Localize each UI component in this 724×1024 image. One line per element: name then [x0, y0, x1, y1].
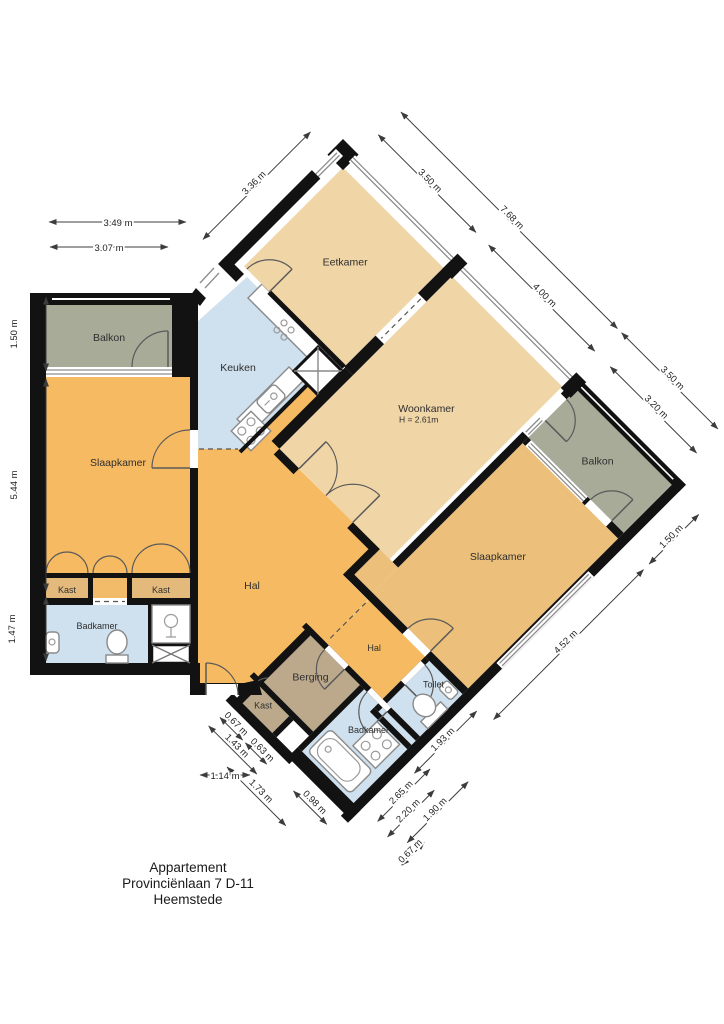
label-slaapkamer-right: Slaapkamer [470, 551, 527, 563]
toilet-left-tank-icon [106, 655, 128, 663]
floorplan-page: 3.50 m 4.00 m 7.68 m 3.20 m 3.50 m 3.36 … [0, 0, 724, 1024]
label-badkamer-left: Badkamer [76, 621, 117, 631]
svg-text:7.68 m: 7.68 m [497, 204, 525, 232]
label-balkon-right: Balkon [582, 455, 614, 467]
label-kast-b: Kast [152, 585, 171, 595]
label-berging: Berging [292, 672, 328, 684]
label-woonkamer-height: H = 2.61m [399, 415, 438, 425]
label-balkon-left: Balkon [93, 332, 125, 344]
label-hal-small: Hal [367, 643, 381, 653]
svg-text:3.49 m: 3.49 m [103, 218, 132, 229]
sink-left-icon [46, 632, 59, 653]
svg-text:5.44 m: 5.44 m [9, 470, 20, 499]
svg-text:4.52 m: 4.52 m [552, 628, 580, 656]
svg-text:3.50 m: 3.50 m [658, 364, 686, 392]
svg-text:0.67 m: 0.67 m [396, 837, 424, 865]
label-kast-a: Kast [58, 585, 77, 595]
svg-text:3.07 m: 3.07 m [94, 243, 123, 254]
label-keuken: Keuken [220, 362, 256, 374]
svg-text:3.50 m: 3.50 m [415, 167, 443, 195]
door-gap-slaapkamer-left [190, 430, 198, 468]
title-line-2: Provinciënlaan 7 D-11 [122, 876, 254, 891]
left-block [30, 293, 198, 675]
window-balkon-slaapkamer [46, 367, 172, 377]
label-toilet: Toilet [423, 680, 445, 690]
svg-text:1.50 m: 1.50 m [657, 523, 685, 551]
room-badkamer-left [46, 605, 148, 663]
svg-text:1.43 m: 1.43 m [222, 732, 250, 760]
title-line-3: Heemstede [153, 892, 222, 907]
label-slaapkamer-left: Slaapkamer [90, 457, 147, 469]
title-line-1: Appartement [149, 860, 227, 875]
label-eetkamer: Eetkamer [323, 257, 368, 269]
plan-title: Appartement Provinciënlaan 7 D-11 Heemst… [122, 860, 254, 907]
label-kast-small: Kast [254, 700, 273, 710]
svg-text:1.73 m: 1.73 m [246, 777, 274, 805]
svg-text:1.14 m: 1.14 m [210, 771, 239, 782]
svg-text:1.47 m: 1.47 m [7, 614, 18, 643]
room-slaapkamer-left [46, 377, 190, 573]
svg-text:3.36 m: 3.36 m [240, 169, 268, 197]
svg-text:1.50 m: 1.50 m [9, 319, 20, 348]
label-woonkamer: Woonkamer [398, 403, 455, 415]
label-hal-main: Hal [244, 580, 260, 592]
floorplan-drawing: 3.50 m 4.00 m 7.68 m 3.20 m 3.50 m 3.36 … [0, 0, 724, 1024]
label-badkamer-small: Badkamer [348, 725, 389, 735]
svg-text:4.00 m: 4.00 m [530, 281, 558, 309]
toilet-left-bowl-icon [107, 630, 127, 654]
svg-text:3.20 m: 3.20 m [642, 393, 670, 421]
front-door-gap [206, 684, 238, 695]
